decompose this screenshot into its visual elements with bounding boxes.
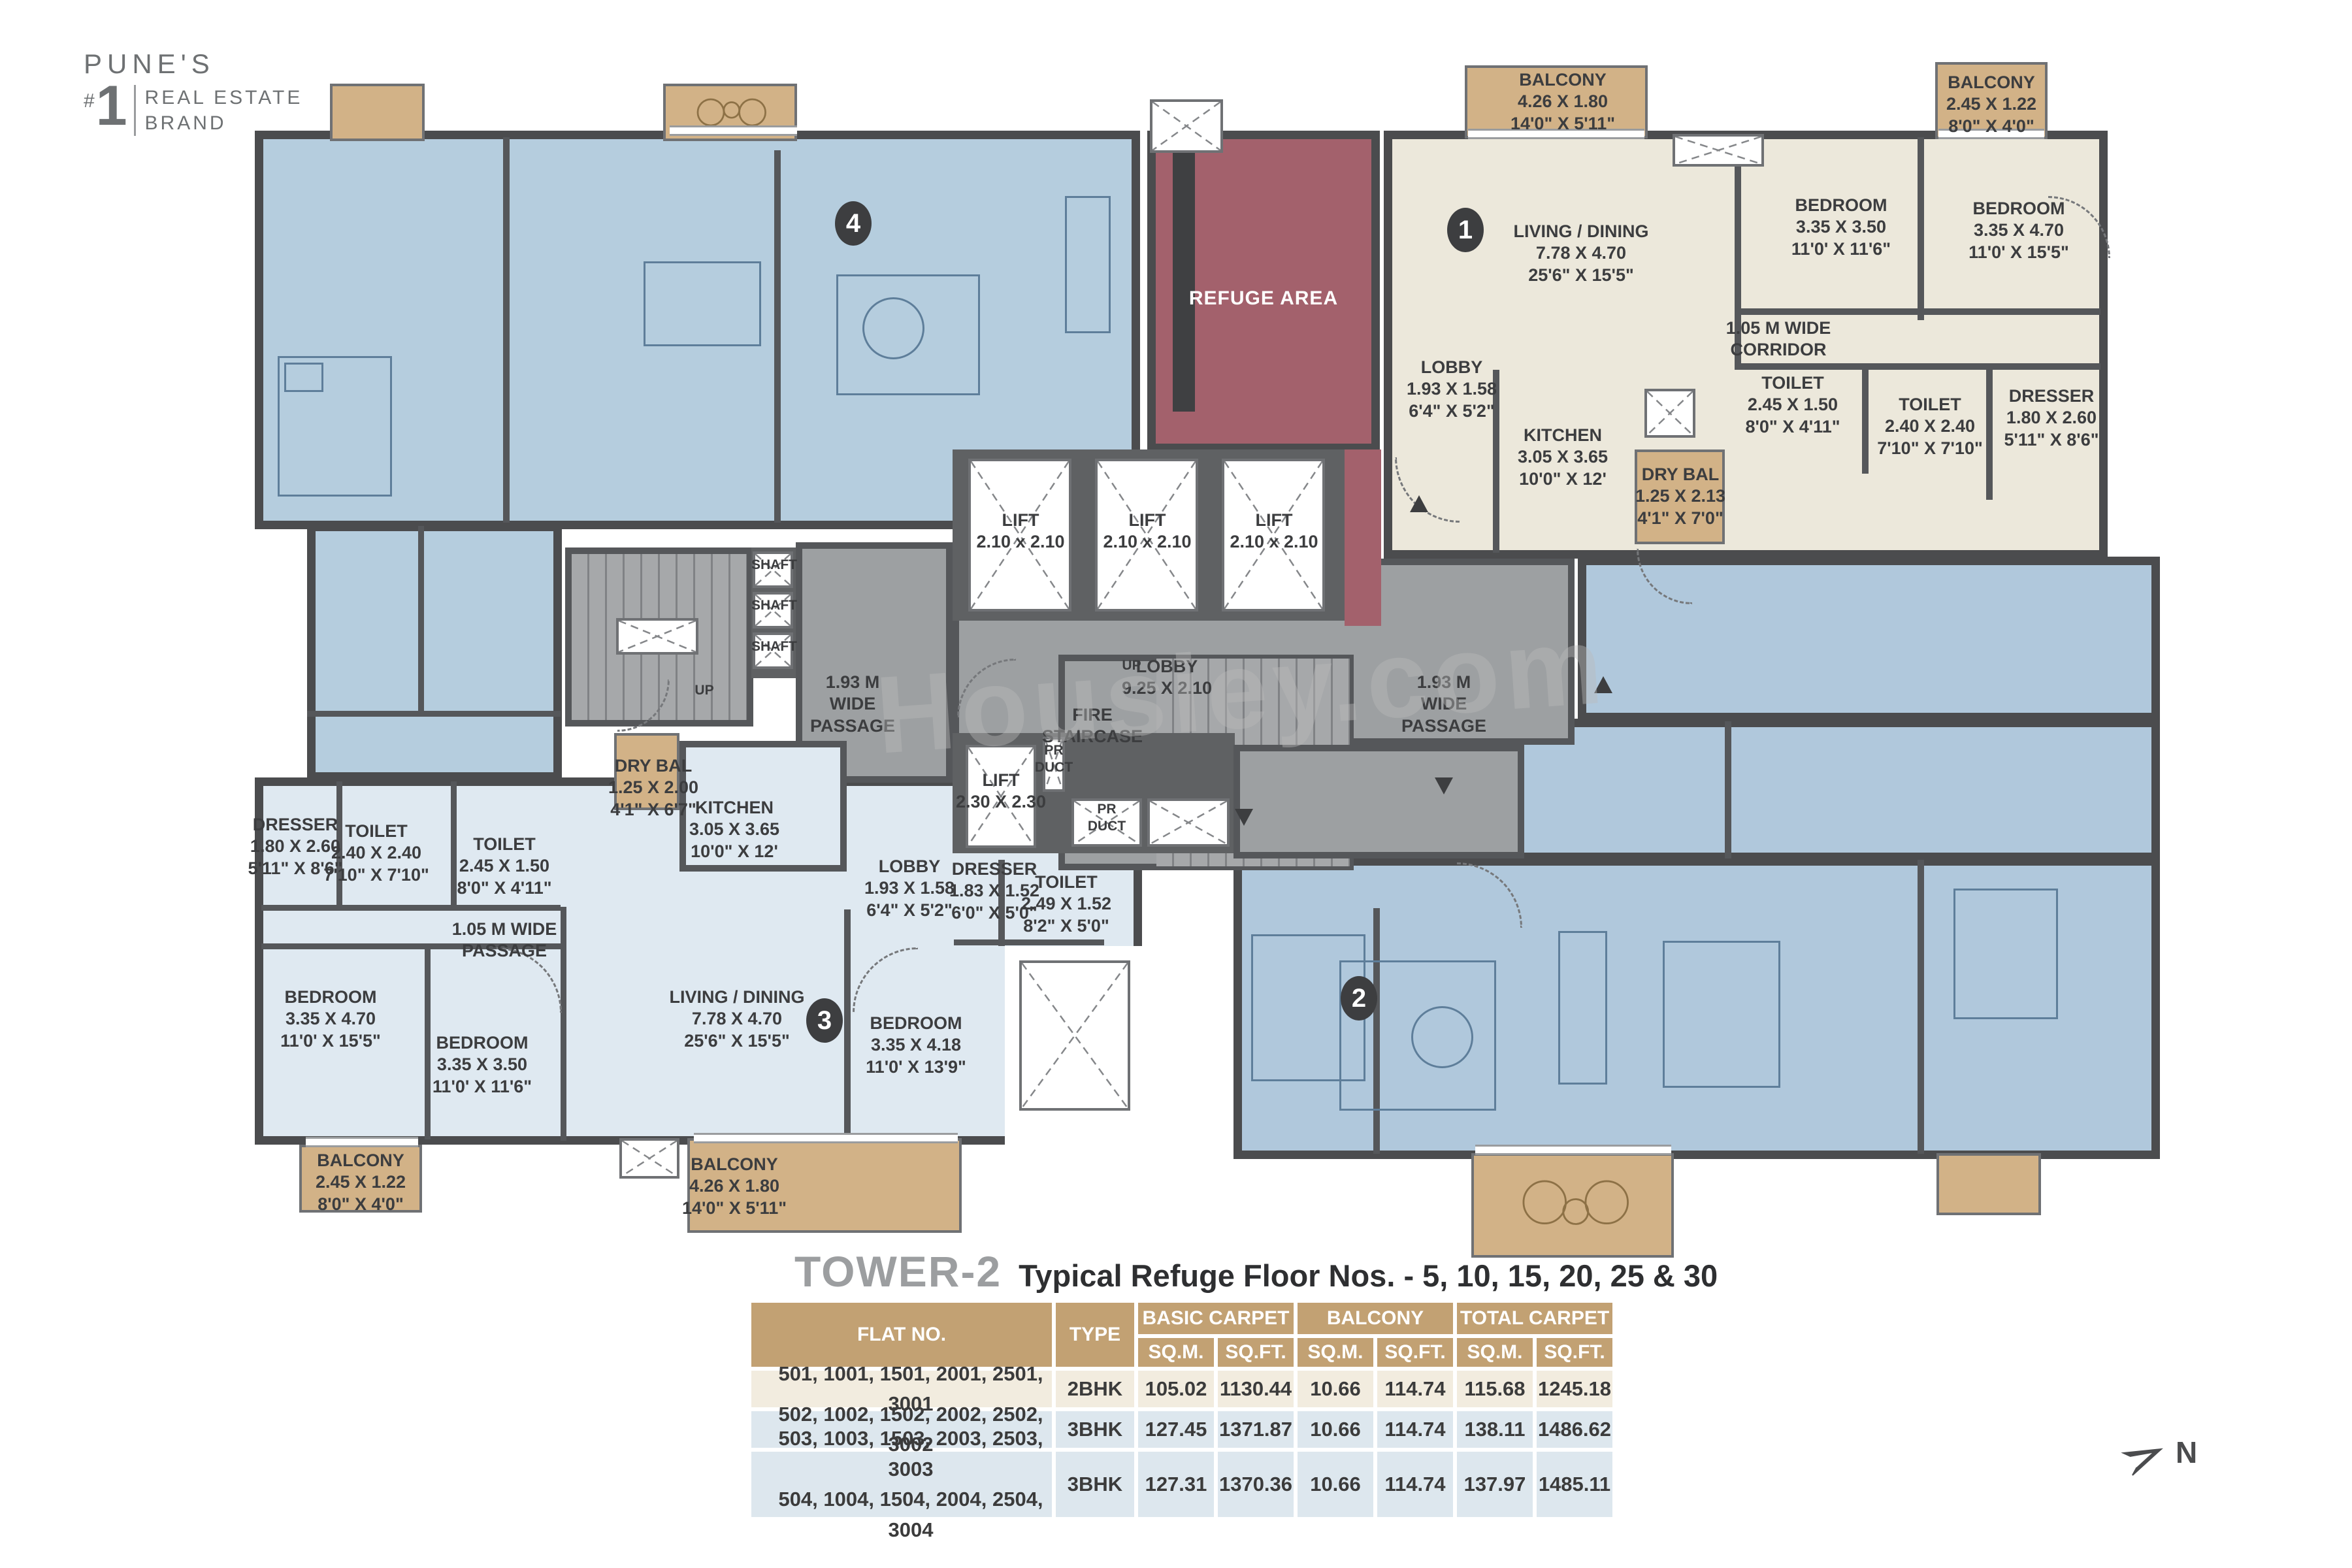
room-name: TOILET (457, 834, 551, 855)
unit-number: 1 (1458, 216, 1473, 245)
room-dims-metric: 2.10 x 2.10 (976, 531, 1064, 553)
window (1475, 1145, 1671, 1155)
col-header-sqft: SQ.FT. (1218, 1338, 1294, 1367)
room-name: TOILET (1745, 372, 1840, 394)
room-dims-feet: 8'0" X 4'11" (1745, 416, 1840, 438)
balcony-chairs-icon (1474, 1156, 1671, 1255)
coffee-table-icon (1411, 1006, 1473, 1068)
room-name: PR (1035, 742, 1073, 759)
room-label: LIVING / DINING 7.78 X 4.70 25'6" X 15'5… (1513, 221, 1648, 286)
basic-sqm: 105.02 (1138, 1371, 1214, 1407)
room-name: LIVING / DINING (1513, 221, 1648, 242)
room-label: 1.05 M WIDE CORRIDOR (1726, 318, 1831, 361)
room-dims-metric: 2.10 x 2.10 (1230, 531, 1318, 553)
area-table: FLAT NO. TYPE BASIC CARPET BALCONY TOTAL… (751, 1303, 1612, 1517)
col-header-sqm: SQ.M. (1138, 1338, 1214, 1367)
room-dims-metric: CORRIDOR (1726, 339, 1831, 361)
room-name: LOBBY (864, 856, 955, 877)
room-dims-metric: 2.45 X 1.50 (1745, 394, 1840, 416)
north-label: N (2176, 1435, 2197, 1470)
up-arrow-icon (1410, 495, 1428, 512)
room-label: DRY BAL 1.25 X 2.00 4'1" X 6'7" (608, 755, 698, 821)
brand-line2: REAL ESTATE (145, 87, 303, 108)
unit-number-badge: 3 (806, 998, 843, 1043)
room-name: DRY BAL (1635, 464, 1725, 485)
room-name: SHAFT (751, 557, 797, 574)
room-label: BEDROOM 3.35 X 4.70 11'0' X 15'5" (1968, 198, 2069, 263)
room-dims-feet: 25'6" X 15'5" (1513, 265, 1648, 286)
total-sqm: 137.97 (1457, 1452, 1533, 1517)
room-name: 1.93 M (810, 672, 895, 693)
room-label: 1.93 M WIDE PASSAGE (810, 672, 895, 737)
room-name: KITCHEN (1518, 425, 1608, 446)
room-dims-metric: 1.25 X 2.13 (1635, 485, 1725, 507)
unit-number: 2 (1352, 984, 1366, 1013)
room-dims-feet: 7'10" X 7'10" (1877, 438, 1983, 459)
refuge-floor-note: Typical Refuge Floor Nos. - 5, 10, 15, 2… (1019, 1258, 1718, 1294)
down-arrow-icon (1235, 809, 1253, 826)
room-name: 1.05 M WIDE (452, 919, 557, 940)
window (670, 125, 797, 136)
room-dims-feet: 8'0" X 4'11" (457, 877, 551, 899)
balcony-top-left (330, 84, 425, 141)
room-label: DRESSER 1.80 X 2.60 5'11" X 8'6" (2004, 385, 2099, 451)
room-label: PR DUCT (1035, 742, 1073, 776)
room-dims-feet: 25'6" X 15'5" (669, 1030, 804, 1052)
room-dims-feet: 6'4" X 5'2" (864, 900, 955, 921)
room-dims-feet: 10'0" X 12' (1518, 468, 1608, 490)
room-name: 1.93 M (1401, 672, 1486, 693)
brand-line3: BRAND (145, 112, 227, 134)
balcony-sqft: 114.74 (1377, 1371, 1453, 1407)
duct-box (1644, 389, 1695, 438)
room-label: SHAFT (751, 597, 797, 614)
room-name: TOILET (1021, 872, 1111, 893)
room-name: BEDROOM (433, 1032, 532, 1054)
room-name: BEDROOM (1968, 198, 2069, 220)
sofa-icon (1065, 196, 1111, 333)
room-name: BALCONY (682, 1154, 787, 1175)
basic-sqft: 1371.87 (1218, 1411, 1294, 1448)
room-name: LIFT (976, 510, 1064, 531)
room-label: UP (694, 682, 713, 699)
bed-icon (1953, 889, 2058, 1019)
flat-type: 3BHK (1056, 1411, 1134, 1448)
wall (1918, 137, 1924, 320)
room-name: BALCONY (1946, 72, 2036, 93)
total-sqft: 1485.11 (1537, 1452, 1612, 1517)
stair-landing-box (616, 618, 698, 655)
brand-hash: # (84, 90, 95, 112)
down-arrow-icon (1435, 777, 1453, 794)
room-dims-metric: 1.25 X 2.00 (608, 777, 698, 798)
north-arrow-icon (2121, 1435, 2169, 1480)
room-label: PR DUCT (1088, 801, 1126, 835)
col-header-type: TYPE (1056, 1303, 1134, 1367)
window (694, 1133, 958, 1143)
room-label: LOBBY 1.93 X 1.58 6'4" X 5'2" (1407, 357, 1497, 422)
room-dims-feet: PASSAGE (810, 715, 895, 737)
refuge-inner-wall (1173, 137, 1195, 412)
room-label: TOILET 2.45 X 1.50 8'0" X 4'11" (457, 834, 551, 899)
room-dims-feet: 4'1" X 7'0" (1635, 508, 1725, 529)
dining-table-icon (1663, 941, 1780, 1088)
room-dims-metric: DUCT (1088, 818, 1126, 835)
tower-name: TOWER-2 (794, 1247, 1002, 1296)
duct-box (1147, 798, 1230, 847)
flat-numbers: 503, 1003, 1503, 2003, 2503, 3003 (770, 1424, 1052, 1484)
room-name: PR (1088, 801, 1126, 818)
coffee-table-icon (862, 297, 924, 359)
room-dims-metric: 2.45 X 1.22 (1946, 93, 2036, 115)
room-dims-metric: 2.45 X 1.22 (316, 1171, 406, 1193)
room-label: SHAFT (751, 638, 797, 655)
north-indicator: N (2121, 1435, 2197, 1480)
room-dims-metric: WIDE (1401, 693, 1486, 715)
room-dims-feet: 10'0" X 12' (689, 841, 779, 862)
room-label: LIFT 2.10 x 2.10 (976, 510, 1064, 553)
footer-title: TOWER-2 Typical Refuge Floor Nos. - 5, 1… (794, 1247, 1718, 1296)
col-header-sqm: SQ.M. (1298, 1338, 1373, 1367)
room-dims-feet: 11'0' X 15'5" (280, 1030, 381, 1052)
room-dims-metric: DUCT (1035, 759, 1073, 776)
room-dims-metric: 1.93 X 1.58 (864, 877, 955, 899)
room-dims-feet: 5'11" X 8'6" (2004, 429, 2099, 451)
room-name: SHAFT (751, 638, 797, 655)
room-dims-metric: 2.40 X 2.40 (323, 842, 429, 864)
room-name: KITCHEN (689, 797, 779, 819)
duct-box (1019, 960, 1130, 1111)
balcony-sqm: 10.66 (1298, 1452, 1373, 1517)
total-sqft: 1486.62 (1537, 1411, 1612, 1448)
room-dims-metric: 3.05 X 3.65 (1518, 446, 1608, 468)
wall (1986, 366, 1993, 500)
room-dims-metric: WIDE (810, 693, 895, 715)
col-group-basic-carpet: BASIC CARPET (1138, 1303, 1294, 1334)
room-name: UP (1122, 657, 1141, 674)
room-label: TOILET 2.49 X 1.52 8'2" X 5'0" (1021, 872, 1111, 937)
room-dims-metric: PASSAGE (452, 940, 557, 962)
duct-box (1673, 134, 1764, 167)
balcony-sqft: 114.74 (1377, 1411, 1453, 1448)
room-label: BEDROOM 3.35 X 4.18 11'0' X 13'9" (866, 1013, 966, 1078)
room-label: TOILET 2.40 X 2.40 7'10" X 7'10" (323, 821, 429, 886)
room-dims-metric: 3.35 X 4.70 (1968, 220, 2069, 241)
room-label: BEDROOM 3.35 X 3.50 11'0' X 11'6" (1791, 195, 1891, 260)
wall (418, 526, 424, 715)
room-label: KITCHEN 3.05 X 3.65 10'0" X 12' (689, 797, 779, 862)
room-label: LIFT 2.30 X 2.30 (956, 770, 1046, 813)
wall (451, 781, 457, 906)
unit-number-badge: 4 (835, 201, 872, 246)
room-label: TOILET 2.40 X 2.40 7'10" X 7'10" (1877, 394, 1983, 459)
room-name: TOILET (323, 821, 429, 842)
room-dims-feet: 11'0' X 11'6" (1791, 238, 1891, 260)
room-dims-feet: 11'0' X 11'6" (433, 1076, 532, 1098)
total-sqm: 138.11 (1457, 1411, 1533, 1448)
room-dims-feet: 6'4" X 5'2" (1407, 400, 1497, 422)
table-row-flats: 503, 1003, 1503, 2003, 2503, 3003 504, 1… (751, 1452, 1052, 1517)
brand-rank: 1 (96, 81, 127, 131)
room-dims-feet: 11'0' X 13'9" (866, 1056, 966, 1078)
room-name: DRESSER (2004, 385, 2099, 407)
room-label: TOILET 2.45 X 1.50 8'0" X 4'11" (1745, 372, 1840, 438)
room-name: TOILET (1877, 394, 1983, 416)
basic-sqft: 1370.36 (1218, 1452, 1294, 1517)
room-label: 1.93 M WIDE PASSAGE (1401, 672, 1486, 737)
room-dims-feet: PASSAGE (1401, 715, 1486, 737)
room-name: LIFT (956, 770, 1046, 791)
room-name: LOBBY (1407, 357, 1497, 378)
room-name: BEDROOM (280, 987, 381, 1008)
unit-number: 3 (817, 1006, 832, 1036)
room-label: LOBBY 1.93 X 1.58 6'4" X 5'2" (864, 856, 955, 921)
room-dims-feet: 14'0" X 5'11" (1511, 113, 1615, 135)
unit-number: 4 (846, 209, 860, 238)
basic-sqm: 127.45 (1138, 1411, 1214, 1448)
flat-numbers: 504, 1004, 1504, 2004, 2504, 3004 (770, 1484, 1052, 1545)
room-dims-metric: 1.93 X 1.58 (1407, 378, 1497, 400)
room-name: BEDROOM (866, 1013, 966, 1034)
wall (1725, 721, 1731, 858)
sofa-icon (1558, 931, 1607, 1085)
room-dims-feet: 7'10" X 7'10" (323, 864, 429, 886)
col-header-sqft: SQ.FT. (1537, 1338, 1612, 1367)
duct-box (619, 1138, 679, 1179)
room-name: UP (694, 682, 713, 699)
room-dims-metric: 2.40 X 2.40 (1877, 416, 1983, 437)
flat-type: 3BHK (1056, 1452, 1134, 1517)
room-label: LIVING / DINING 7.78 X 4.70 25'6" X 15'5… (669, 987, 804, 1052)
right-passage-region (1233, 745, 1524, 858)
room-dims-metric: 7.78 X 4.70 (669, 1008, 804, 1030)
room-dims-feet: 14'0" X 5'11" (682, 1198, 787, 1219)
room-label: BALCONY 2.45 X 1.22 8'0" X 4'0" (316, 1150, 406, 1215)
wall (1862, 366, 1869, 474)
brand-logo: PUNE'S # 1 REAL ESTATE BRAND (84, 48, 302, 136)
wall (307, 711, 561, 717)
wall (561, 907, 566, 1141)
room-name: FIRE (1042, 704, 1143, 726)
room-dims-feet: 11'0' X 15'5" (1968, 242, 2069, 263)
wall (503, 137, 510, 523)
room-label: UP (1122, 657, 1141, 674)
room-label: FIRE STAIRCASE (1042, 704, 1143, 748)
room-dims-metric: 3.35 X 4.18 (866, 1034, 966, 1056)
room-label: BEDROOM 3.35 X 4.70 11'0' X 15'5" (280, 987, 381, 1052)
refuge-strip (1345, 449, 1381, 626)
wall (954, 939, 1104, 945)
room-label: BALCONY 4.26 X 1.80 14'0" X 5'11" (1511, 69, 1615, 135)
room-dims-metric: 4.26 X 1.80 (1511, 91, 1615, 112)
room-name: SHAFT (751, 597, 797, 614)
basic-sqm: 127.31 (1138, 1452, 1214, 1517)
room-name: LIFT (1103, 510, 1191, 531)
duct-box (1150, 99, 1223, 153)
room-dims-metric: 2.30 X 2.30 (956, 791, 1046, 813)
room-dims-metric: 3.35 X 3.50 (1791, 216, 1891, 238)
wall (261, 905, 561, 911)
room-dims-feet: 8'0" X 4'0" (1946, 116, 2036, 137)
room-label: SHAFT (751, 557, 797, 574)
room-dims-metric: 2.49 X 1.52 (1021, 893, 1111, 915)
balcony-sqft: 114.74 (1377, 1452, 1453, 1517)
window (306, 1137, 418, 1147)
flat-type: 2BHK (1056, 1371, 1134, 1407)
floor-plan-page: PUNE'S # 1 REAL ESTATE BRAND (0, 0, 2352, 1568)
room-name: 1.05 M WIDE (1726, 318, 1831, 339)
room-dims-metric: 4.26 X 1.80 (682, 1175, 787, 1197)
room-label: BALCONY 2.45 X 1.22 8'0" X 4'0" (1946, 72, 2036, 137)
balcony-unit2 (1471, 1153, 1674, 1258)
room-label: BEDROOM 3.35 X 3.50 11'0' X 11'6" (433, 1032, 532, 1098)
room-label: BALCONY 4.26 X 1.80 14'0" X 5'11" (682, 1154, 787, 1219)
total-sqft: 1245.18 (1537, 1371, 1612, 1407)
room-dims-metric: 3.05 X 3.65 (689, 819, 779, 840)
total-sqm: 115.68 (1457, 1371, 1533, 1407)
room-dims-feet: 8'0" X 4'0" (316, 1194, 406, 1215)
room-dims-metric: 2.10 x 2.10 (1103, 531, 1191, 553)
room-dims-metric: 7.78 X 4.70 (1513, 242, 1648, 264)
room-name: REFUGE AREA (1189, 286, 1338, 310)
room-name: LIFT (1230, 510, 1318, 531)
room-label: KITCHEN 3.05 X 3.65 10'0" X 12' (1518, 425, 1608, 490)
room-name: DRY BAL (608, 755, 698, 777)
room-label: LIFT 2.10 x 2.10 (1230, 510, 1318, 553)
room-name: BALCONY (316, 1150, 406, 1171)
col-group-balcony: BALCONY (1298, 1303, 1453, 1334)
col-group-total-carpet: TOTAL CARPET (1457, 1303, 1612, 1334)
col-header-flat-no: FLAT NO. (751, 1303, 1052, 1367)
room-dims-feet: 8'2" X 5'0" (1021, 915, 1111, 937)
unit-number-badge: 1 (1447, 208, 1484, 252)
room-name: LIVING / DINING (669, 987, 804, 1008)
pillow-icon (284, 363, 323, 392)
room-dims-metric: 2.45 X 1.50 (457, 855, 551, 877)
basic-sqft: 1130.44 (1218, 1371, 1294, 1407)
room-name: BEDROOM (1791, 195, 1891, 216)
room-dims-metric: 3.35 X 3.50 (433, 1054, 532, 1075)
room-dims-metric: 1.80 X 2.60 (2004, 407, 2099, 429)
wall (425, 946, 431, 1139)
balcony-sqm: 10.66 (1298, 1371, 1373, 1407)
room-dims-metric: 9.25 X 2.10 (1122, 678, 1212, 699)
wall (1918, 860, 1924, 1154)
room-label: DRY BAL 1.25 X 2.13 4'1" X 7'0" (1635, 464, 1725, 529)
room-label: LIFT 2.10 x 2.10 (1103, 510, 1191, 553)
wall (1735, 363, 2100, 370)
brand-tagline: REAL ESTATE BRAND (134, 85, 303, 136)
wall (844, 909, 851, 1139)
unit4-annex-region (307, 523, 562, 781)
col-header-sqft: SQ.FT. (1377, 1338, 1453, 1367)
balcony-unit2-side (1936, 1153, 2041, 1215)
wall (774, 150, 781, 523)
room-name: BALCONY (1511, 69, 1615, 91)
room-label: 1.05 M WIDE PASSAGE (452, 919, 557, 962)
wall (1735, 308, 2100, 315)
room-dims-feet: 4'1" X 6'7" (608, 799, 698, 821)
dining-table-icon (644, 261, 761, 346)
up-arrow-icon (1594, 676, 1612, 693)
unit-number-badge: 2 (1341, 976, 1377, 1021)
room-label: REFUGE AREA (1189, 286, 1338, 310)
col-header-sqm: SQ.M. (1457, 1338, 1533, 1367)
room-dims-metric: 3.35 X 4.70 (280, 1008, 381, 1030)
balcony-sqm: 10.66 (1298, 1411, 1373, 1448)
